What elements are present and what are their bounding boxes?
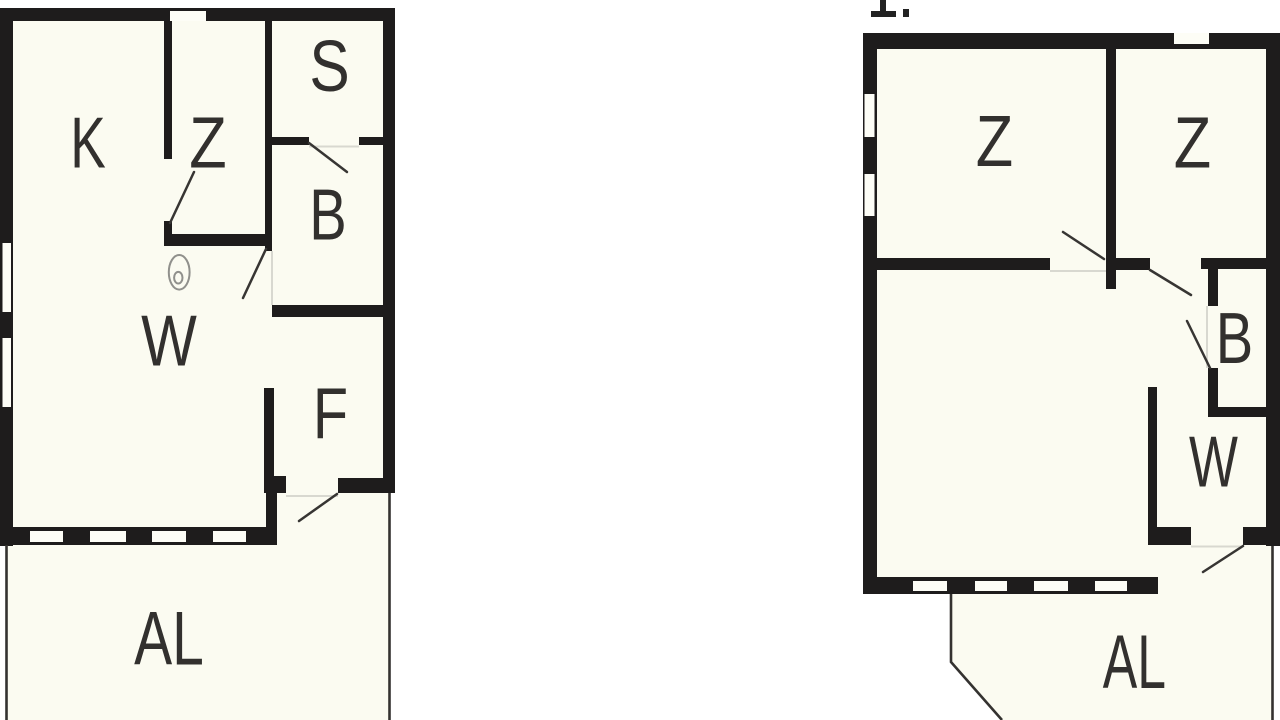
svg-text:S: S <box>309 27 349 107</box>
svg-text:B: B <box>309 175 346 255</box>
svg-text:Z: Z <box>976 102 1013 182</box>
svg-text:F: F <box>313 373 348 454</box>
svg-text:AL: AL <box>134 597 204 682</box>
svg-text:AL: AL <box>1103 619 1166 704</box>
svg-text:W: W <box>141 300 197 381</box>
svg-text:W: W <box>1189 422 1238 502</box>
svg-text:Z: Z <box>189 104 226 184</box>
svg-text:K: K <box>70 104 106 184</box>
svg-text:Z: Z <box>1174 104 1211 184</box>
svg-text:B: B <box>1216 298 1253 378</box>
